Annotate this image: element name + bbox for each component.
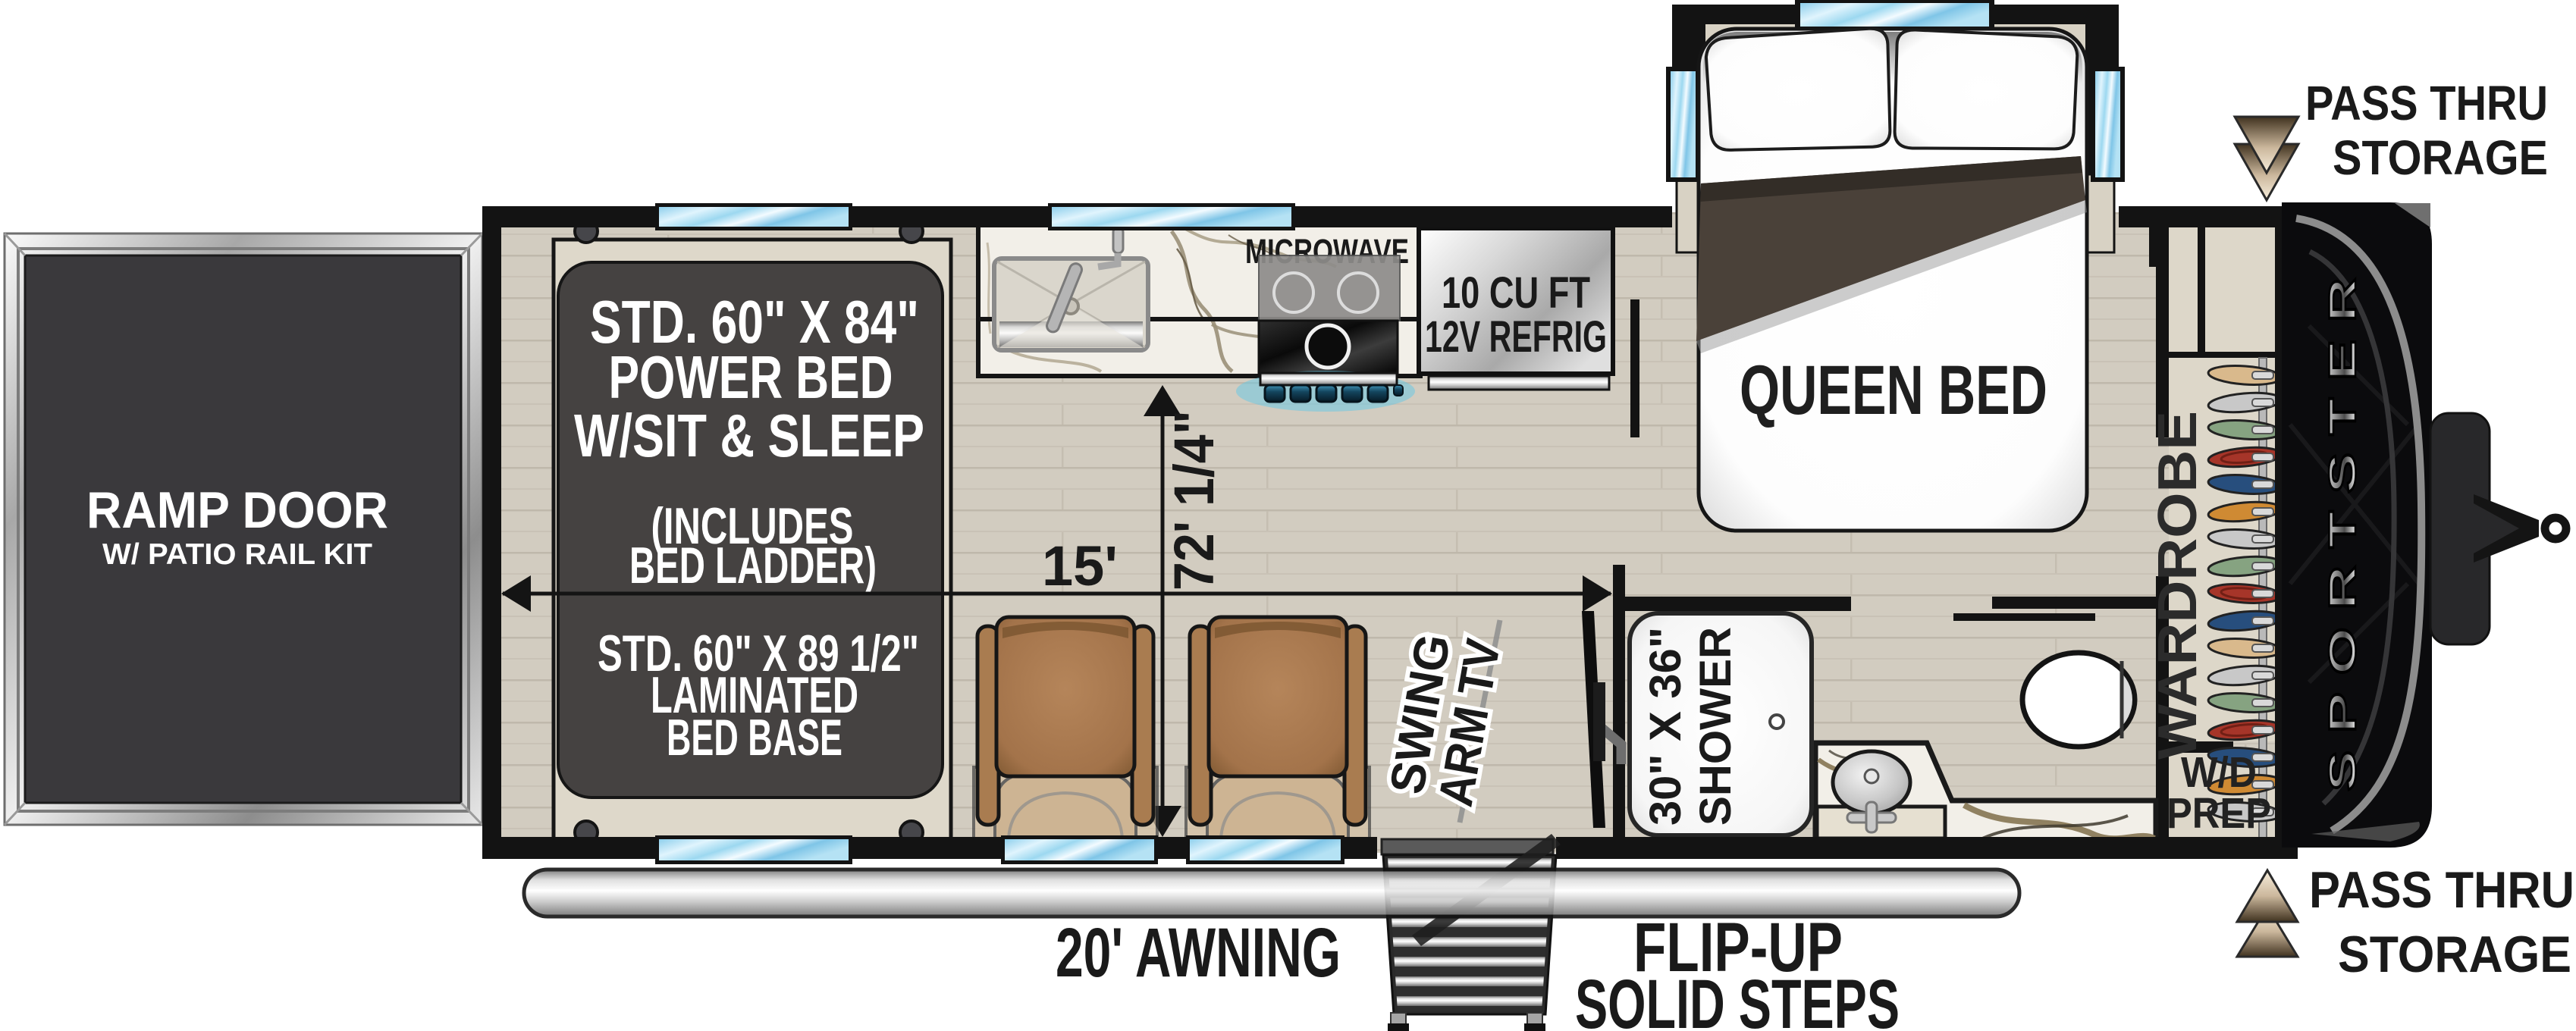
svg-text:PASS THRU: PASS THRU [2305,76,2548,130]
svg-text:SOLID STEPS: SOLID STEPS [1575,966,1900,1031]
svg-text:W/ PATIO RAIL KIT: W/ PATIO RAIL KIT [102,538,372,571]
svg-text:12V REFRIG: 12V REFRIG [1425,312,1607,362]
svg-text:BED BASE: BED BASE [667,709,842,766]
svg-text:POWER BED: POWER BED [609,343,893,411]
svg-text:STORAGE: STORAGE [2333,130,2548,185]
svg-text:RAMP DOOR: RAMP DOOR [86,481,388,539]
svg-text:30" X 36": 30" X 36" [1641,627,1690,826]
svg-text:72' 1/4": 72' 1/4" [1162,410,1225,591]
svg-text:PREP: PREP [2167,789,2271,838]
svg-text:STORAGE: STORAGE [2338,926,2571,983]
svg-text:QUEEN BED: QUEEN BED [1740,352,2047,429]
svg-text:SHOWER: SHOWER [1691,627,1740,826]
svg-text:10 CU FT: 10 CU FT [1442,268,1590,318]
svg-text:20' AWNING: 20' AWNING [1056,914,1341,992]
svg-text:W/SIT & SLEEP: W/SIT & SLEEP [574,402,924,469]
svg-text:15': 15' [1042,534,1118,597]
svg-text:WARDROBE: WARDROBE [2148,411,2208,760]
svg-text:PASS THRU: PASS THRU [2309,861,2574,919]
svg-text:SPORTSTER: SPORTSTER [2321,261,2364,791]
svg-text:BED LADDER): BED LADDER) [629,537,877,594]
